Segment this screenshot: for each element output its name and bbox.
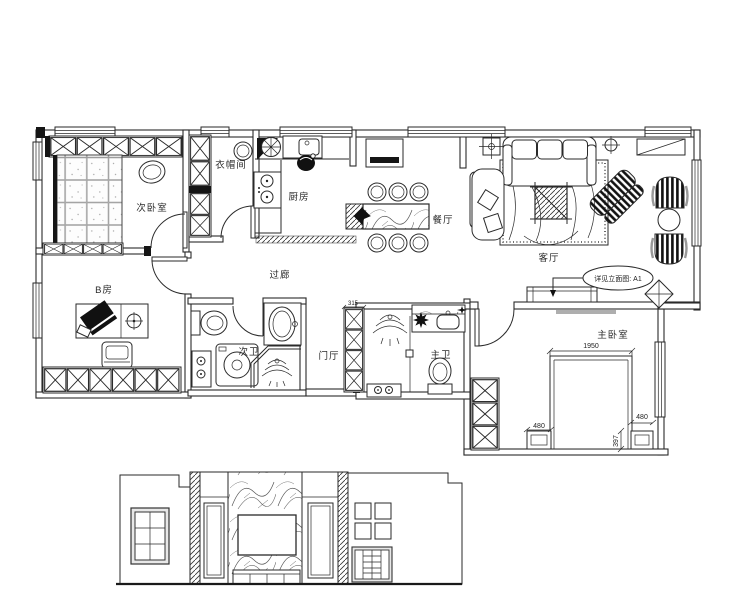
dim-397: 397 <box>613 435 620 447</box>
elevation-dresser <box>352 547 392 582</box>
window-top-living <box>645 127 691 137</box>
dining-table <box>346 204 429 229</box>
wardrobe-master <box>471 378 499 450</box>
room-label-living: 客厅 <box>538 252 559 264</box>
desk-chair <box>102 342 132 368</box>
drain-rack <box>262 138 281 157</box>
nightstand-left <box>527 431 551 449</box>
room-secondary-bedroom: 次卧室 <box>43 136 182 255</box>
floor-plan: 次卧室 衣帽间 <box>33 127 701 455</box>
room-living: 客厅 <box>472 134 688 308</box>
cloakroom-cabinet <box>189 135 211 237</box>
room-label-secondary-bedroom: 次卧室 <box>136 202 168 214</box>
room-label-master-bedroom: 主卧室 <box>597 329 629 341</box>
desk <box>76 300 148 338</box>
window-left-bedroom <box>33 142 42 180</box>
room-foyer: 门厅 315 <box>318 301 366 392</box>
tv-wall-center <box>228 472 302 584</box>
nightstand-right <box>631 431 653 449</box>
pillar-right <box>338 472 348 584</box>
sofa <box>503 137 596 186</box>
window-right-living <box>692 160 701 246</box>
window-left-room-b <box>33 283 42 338</box>
door-room-b <box>152 257 187 294</box>
room-secondary-bathroom: 次卫 <box>191 303 301 388</box>
tv-screen <box>238 515 296 555</box>
stove <box>254 172 281 208</box>
room-label-cloakroom: 衣帽间 <box>215 159 247 171</box>
kitchen-threshold <box>256 236 356 243</box>
room-label-foyer: 门厅 <box>318 350 339 362</box>
coffee-table <box>530 182 572 224</box>
console-table <box>366 139 403 167</box>
tv-cabinet <box>527 287 597 302</box>
room-master-bedroom: 1950 480 480 397 主卧室 <box>471 311 656 452</box>
elevation-left-window <box>131 508 169 564</box>
room-label-kitchen: 厨房 <box>288 191 309 203</box>
bed-secondary <box>53 155 122 245</box>
room-cloakroom: 衣帽间 <box>189 135 252 237</box>
door-cloakroom <box>221 206 255 238</box>
window-right-master-bedroom <box>655 342 665 417</box>
room-label-master-bathroom: 主卫 <box>430 349 451 361</box>
dim-480-left: 480 <box>533 423 545 430</box>
floor-plan-page: 次卧室 衣帽间 <box>0 0 740 600</box>
callout-text: 详见立面图: A1 <box>594 274 642 283</box>
room-b: B房 <box>43 284 181 393</box>
door-secondary-bathroom <box>233 304 263 336</box>
cabinet-master-bath <box>367 384 401 397</box>
side-table <box>658 209 680 231</box>
cloakroom-stool <box>234 142 252 160</box>
door-secondary-bedroom <box>151 212 187 248</box>
dim-480-right: 480 <box>636 414 648 421</box>
chaise-lounge <box>472 169 504 240</box>
room-label-corridor: 过廊 <box>269 269 290 281</box>
armchair-top <box>653 177 688 208</box>
floor-plan-canvas: 次卧室 衣帽间 <box>0 0 740 600</box>
room-label-secondary-bathroom: 次卫 <box>238 346 259 358</box>
window-top-dining <box>408 127 505 137</box>
dim-1950: 1950 <box>583 343 599 350</box>
door-master-bedroom <box>475 309 514 346</box>
pillar-left <box>190 472 200 584</box>
room-kitchen: 厨房 <box>254 136 356 243</box>
tv-stand <box>233 570 300 584</box>
elevation-view <box>116 472 462 584</box>
stool <box>137 159 167 186</box>
dim-315: 315 <box>348 301 359 307</box>
toilet-secondary <box>191 311 227 335</box>
foyer-cabinet <box>344 308 364 392</box>
room-label-dining: 餐厅 <box>432 214 453 226</box>
ceiling-lamp <box>479 134 504 159</box>
wardrobe-room-b <box>43 367 181 393</box>
vanity-master <box>410 305 467 332</box>
light-fixture <box>602 136 620 154</box>
console-cabinet <box>637 139 685 155</box>
shower-master <box>373 315 407 346</box>
room-master-bathroom: 主卫 <box>367 305 467 397</box>
armchair-bottom <box>652 234 687 264</box>
room-label-room-b: B房 <box>95 284 113 296</box>
bath-cabinet <box>192 351 211 387</box>
toilet-master <box>428 358 452 394</box>
wardrobe-top <box>45 136 182 157</box>
master-bed <box>550 356 632 449</box>
wardrobe-bottom <box>43 243 123 255</box>
curtain-box <box>556 311 616 313</box>
basin-secondary <box>264 303 301 345</box>
